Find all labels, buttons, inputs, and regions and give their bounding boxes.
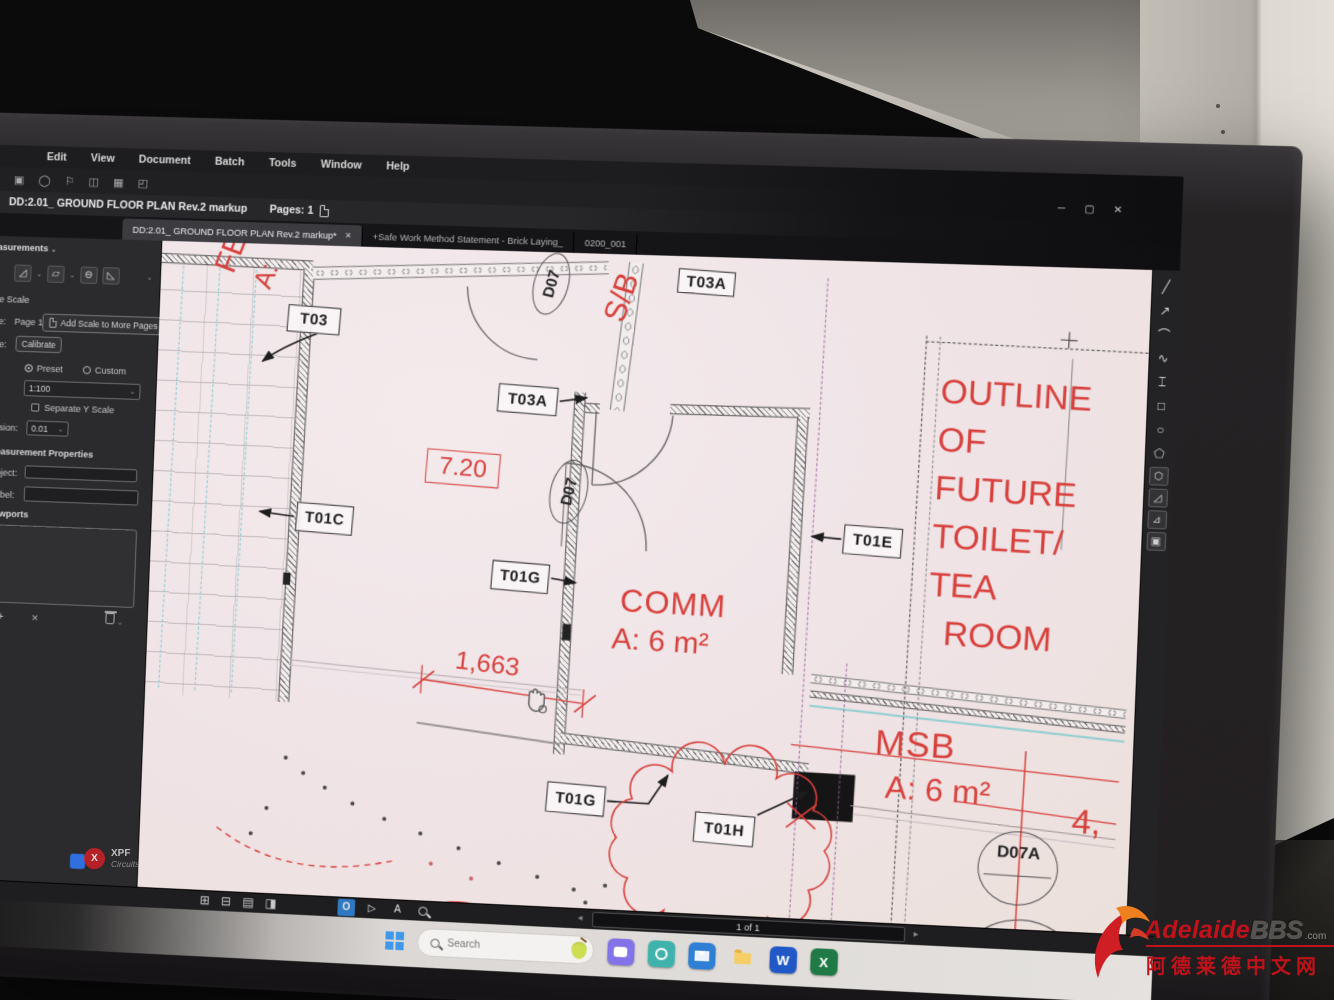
viewports-header[interactable]: ⌄ Viewports <box>0 508 29 520</box>
screen: Edit View Document Batch Tools Window He… <box>0 144 1184 1000</box>
next-page-button[interactable]: ▸ <box>913 928 918 940</box>
taskbar-mail-icon[interactable] <box>687 942 715 970</box>
pages-indicator: Pages: 1 <box>269 204 329 218</box>
page-view-icons: ⊞ ⊟ ▤ ◨ <box>199 893 276 911</box>
page-label: Page: <box>0 316 6 327</box>
tab-label: 0200_001 <box>585 237 627 248</box>
brand-suffix: .com <box>1305 931 1327 945</box>
app-icon-blue[interactable] <box>70 853 86 869</box>
zoom-tool-button[interactable] <box>414 902 432 920</box>
xpf-watermark: X XPF Circuits <box>84 848 139 869</box>
delete-row: ⌄ <box>105 613 123 627</box>
add-viewport-button[interactable]: + <box>0 611 4 623</box>
separate-y-checkbox[interactable]: Separate Y Scale <box>31 402 114 415</box>
text-select-tool-button[interactable]: A <box>388 901 406 919</box>
chevron-down-icon: ⌄ <box>51 246 57 253</box>
xpf-subtitle: Circuits <box>111 859 139 869</box>
floor-plan: D07 D07 D07A T03 T03A T03A T01 <box>137 241 1151 935</box>
snapshot-tool-icon[interactable]: ▣ <box>1146 532 1166 551</box>
tag-t03a-top: T03A <box>677 268 736 297</box>
label-field[interactable] <box>24 486 139 505</box>
tab-close-icon[interactable]: ✕ <box>345 231 352 240</box>
area-tool-icon[interactable]: ◿ <box>1148 488 1168 507</box>
angle-tool-icon[interactable]: ⊿ <box>1147 510 1167 529</box>
menu-edit[interactable]: Edit <box>47 151 67 164</box>
room-msb-name: MSB <box>874 723 957 768</box>
arrow-tool-icon[interactable]: ↗ <box>1154 300 1176 321</box>
line-tool-icon[interactable]: ╱ <box>1155 276 1177 297</box>
custom-radio[interactable]: Custom <box>83 365 127 376</box>
previous-page-button[interactable]: ◂ <box>578 912 583 923</box>
page-icon[interactable] <box>319 205 329 217</box>
tag-t01h: T01H <box>693 811 756 847</box>
measure-tools-row: ◿⌄ ▱⌄ ⊖ ◺ ⌄ <box>14 264 153 285</box>
page-value: Page 1 <box>14 317 43 328</box>
tab-label: DD:2.01_ GROUND FLOOR PLAN Rev.2 markup* <box>132 224 336 240</box>
wall-screw <box>1216 104 1220 108</box>
tag-t03a: T03A <box>497 383 559 416</box>
tag-t03: T03 <box>286 304 341 335</box>
photo-of-monitor: Edit View Document Batch Tools Window He… <box>0 0 1334 1000</box>
room-msb-area: A: 6 m² <box>884 769 991 813</box>
length-tool-icon[interactable]: ⌶ <box>1151 371 1173 392</box>
radio-on-icon <box>25 364 33 372</box>
menu-window[interactable]: Window <box>321 158 362 171</box>
maximize-button[interactable]: ▢ <box>1084 203 1095 215</box>
magnifier-icon <box>418 906 428 916</box>
arc-tool-icon[interactable]: ⌒ <box>1153 324 1175 345</box>
bird-logo-icon <box>1084 902 1156 982</box>
menu-document[interactable]: Document <box>139 154 191 167</box>
adelaidebbs-watermark: Adelaide BBS .com 阿德莱德中文网 <box>1088 916 1334 979</box>
flag-icon[interactable]: ⚐ <box>64 174 74 187</box>
brand-adelaide: Adelaide <box>1144 916 1250 945</box>
chevron-down-icon[interactable]: ⌄ <box>117 619 123 626</box>
tag-t01g-lower: T01G <box>545 781 606 817</box>
search-icon <box>430 938 440 948</box>
ellipse-tool-icon[interactable]: ○ <box>1149 419 1171 440</box>
crop-icon[interactable]: ◰ <box>138 176 149 189</box>
room-comm-name: COMM <box>619 582 727 625</box>
grid-ref-4: 4, <box>1070 802 1102 843</box>
scale-label: Scale: <box>0 339 7 350</box>
pan-tool-button[interactable]: O <box>337 899 355 917</box>
wall-screw <box>1221 130 1225 134</box>
taskbar-search[interactable] <box>416 928 594 965</box>
menu-tools[interactable]: Tools <box>269 157 297 170</box>
page-plus-icon <box>49 318 57 328</box>
document-title: DD:2.01_ GROUND FLOOR PLAN Rev.2 markup <box>9 196 248 215</box>
xpf-title: XPF <box>111 848 139 859</box>
calibrate-button[interactable]: Calibrate <box>15 336 62 354</box>
tag-t01g-upper: T01G <box>490 560 550 594</box>
search-highlight-icon <box>571 941 587 959</box>
measure-tool-1[interactable]: ◿ <box>14 264 32 282</box>
taskbar-word-icon[interactable]: W <box>769 946 797 974</box>
chevron-down-icon: ⌄ <box>129 388 135 396</box>
polygon-tool-icon[interactable]: ⬠ <box>1148 443 1170 464</box>
close-button[interactable]: ✕ <box>1113 204 1122 216</box>
taskbar-chat-icon[interactable] <box>607 938 635 966</box>
precision-select[interactable]: 0.01⌄ <box>26 420 69 437</box>
taskbar-files-icon[interactable] <box>728 944 756 972</box>
taskbar-excel-icon[interactable]: X <box>810 948 838 976</box>
page-scale-section: Page Scale <box>0 294 30 305</box>
stamp-icon[interactable]: ▣ <box>14 173 25 186</box>
label-label: Label: <box>0 489 15 500</box>
measurement-properties-header[interactable]: ⌄ Measurement Properties <box>0 446 93 460</box>
chevron-down-icon: ⌄ <box>57 425 63 433</box>
subject-field[interactable] <box>24 465 137 482</box>
trash-icon[interactable] <box>105 613 114 624</box>
pages-label: Pages: 1 <box>269 204 313 217</box>
select-tool-button[interactable]: ▷ <box>363 900 381 918</box>
panel-title[interactable]: Measurements ⌄ <box>0 242 57 254</box>
scale-preset-select[interactable]: 1:100⌄ <box>24 380 141 400</box>
search-input[interactable] <box>447 938 536 954</box>
measure-tool-2[interactable]: ▱ <box>47 265 65 283</box>
minimize-button[interactable]: ─ <box>1057 203 1065 215</box>
polyline-tool-icon[interactable]: ⬡ <box>1148 467 1168 486</box>
tag-t01e: T01E <box>842 524 903 559</box>
circle-icon[interactable]: ◯ <box>38 173 51 186</box>
room-comm-area: A: 6 m² <box>611 623 710 663</box>
precision-label: Precision: <box>0 422 18 433</box>
pen-tool-icon[interactable]: ∿ <box>1152 348 1174 369</box>
preset-radio[interactable]: Preset <box>25 363 63 374</box>
remove-viewport-button[interactable]: ✕ <box>31 613 39 624</box>
page-row: Page: Page 1 <box>0 316 43 328</box>
brand-bbs: BBS <box>1250 916 1303 945</box>
start-button[interactable] <box>385 931 404 950</box>
window-controls: ─ ▢ ✕ <box>1057 203 1122 216</box>
single-page-icon[interactable]: ⊞ <box>199 893 210 908</box>
taskbar-phone-icon[interactable] <box>647 940 675 968</box>
drawing-canvas[interactable]: D07 D07 D07A T03 T03A T03A T01 <box>137 241 1152 935</box>
radio-off-icon <box>83 366 91 374</box>
pan-hand-cursor <box>528 689 547 713</box>
chevron-down-icon[interactable]: ⌄ <box>146 273 152 281</box>
brand-chinese: 阿德莱德中文网 <box>1146 945 1334 979</box>
add-scale-button[interactable]: Add Scale to More Pages <box>42 313 164 335</box>
menu-help[interactable]: Help <box>386 160 410 173</box>
tab-label: +Safe Work Method Statement - Brick Layi… <box>373 231 563 247</box>
viewports-list[interactable] <box>0 524 137 608</box>
rectangle-tool-icon[interactable]: □ <box>1150 395 1172 416</box>
xpf-logo: X <box>84 848 105 869</box>
tag-t01c: T01C <box>295 502 354 536</box>
measurements-panel: Measurements ⌄ ◿⌄ ▱⌄ ⊖ ◺ ⌄ Page Scale Pa… <box>0 235 162 887</box>
tag-divider <box>983 873 1051 879</box>
continuous-icon[interactable]: ⊟ <box>221 894 232 909</box>
chevron-down-icon[interactable]: ⌄ <box>69 271 75 279</box>
menu-view[interactable]: View <box>91 152 115 165</box>
tab-0200-001[interactable]: 0200_001 <box>574 232 638 255</box>
checkbox-icon <box>31 403 39 411</box>
image-icon[interactable]: ▦ <box>113 175 124 188</box>
measure-tool-4[interactable]: ◺ <box>102 267 120 285</box>
page-count: 1 of 1 <box>736 921 760 932</box>
profile-icon[interactable]: ◫ <box>88 175 99 188</box>
markup-7-20: 7.20 <box>424 448 501 489</box>
measure-tool-3[interactable]: ⊖ <box>80 266 98 284</box>
chevron-down-icon[interactable]: ⌄ <box>36 270 42 278</box>
subject-label: Subject: <box>0 467 17 478</box>
menu-batch[interactable]: Batch <box>215 156 245 169</box>
monitor: Edit View Document Batch Tools Window He… <box>0 112 1303 1000</box>
markup-outline-note: OUTLINE OF FUTURE TOILET/ TEA ROOM <box>925 367 1094 666</box>
side-by-side-icon[interactable]: ▤ <box>242 895 254 910</box>
split-view-icon[interactable]: ◨ <box>265 896 277 911</box>
